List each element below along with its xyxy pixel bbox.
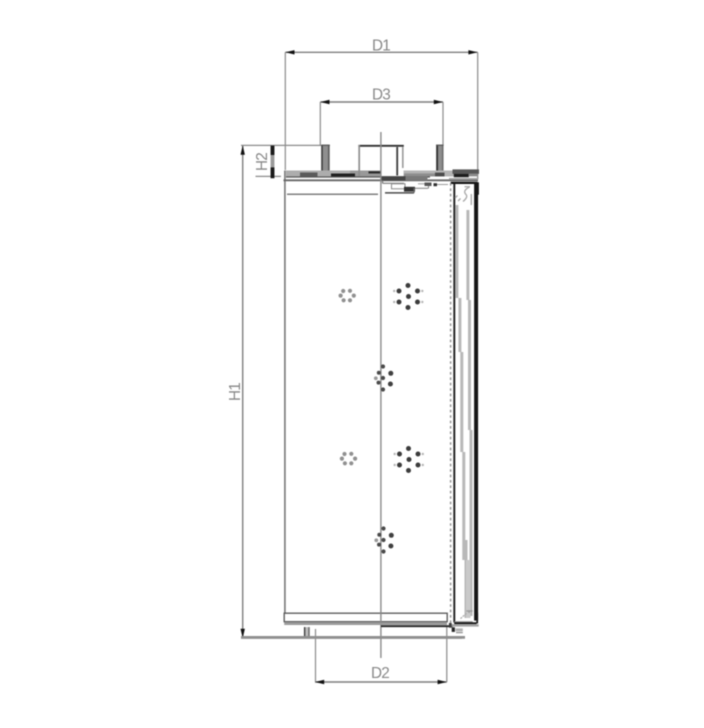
- svg-text:H1: H1: [227, 383, 244, 401]
- svg-text:D1: D1: [372, 38, 390, 55]
- svg-text:D3: D3: [372, 86, 390, 103]
- svg-text:D2: D2: [371, 665, 389, 682]
- svg-text:H2: H2: [254, 153, 271, 171]
